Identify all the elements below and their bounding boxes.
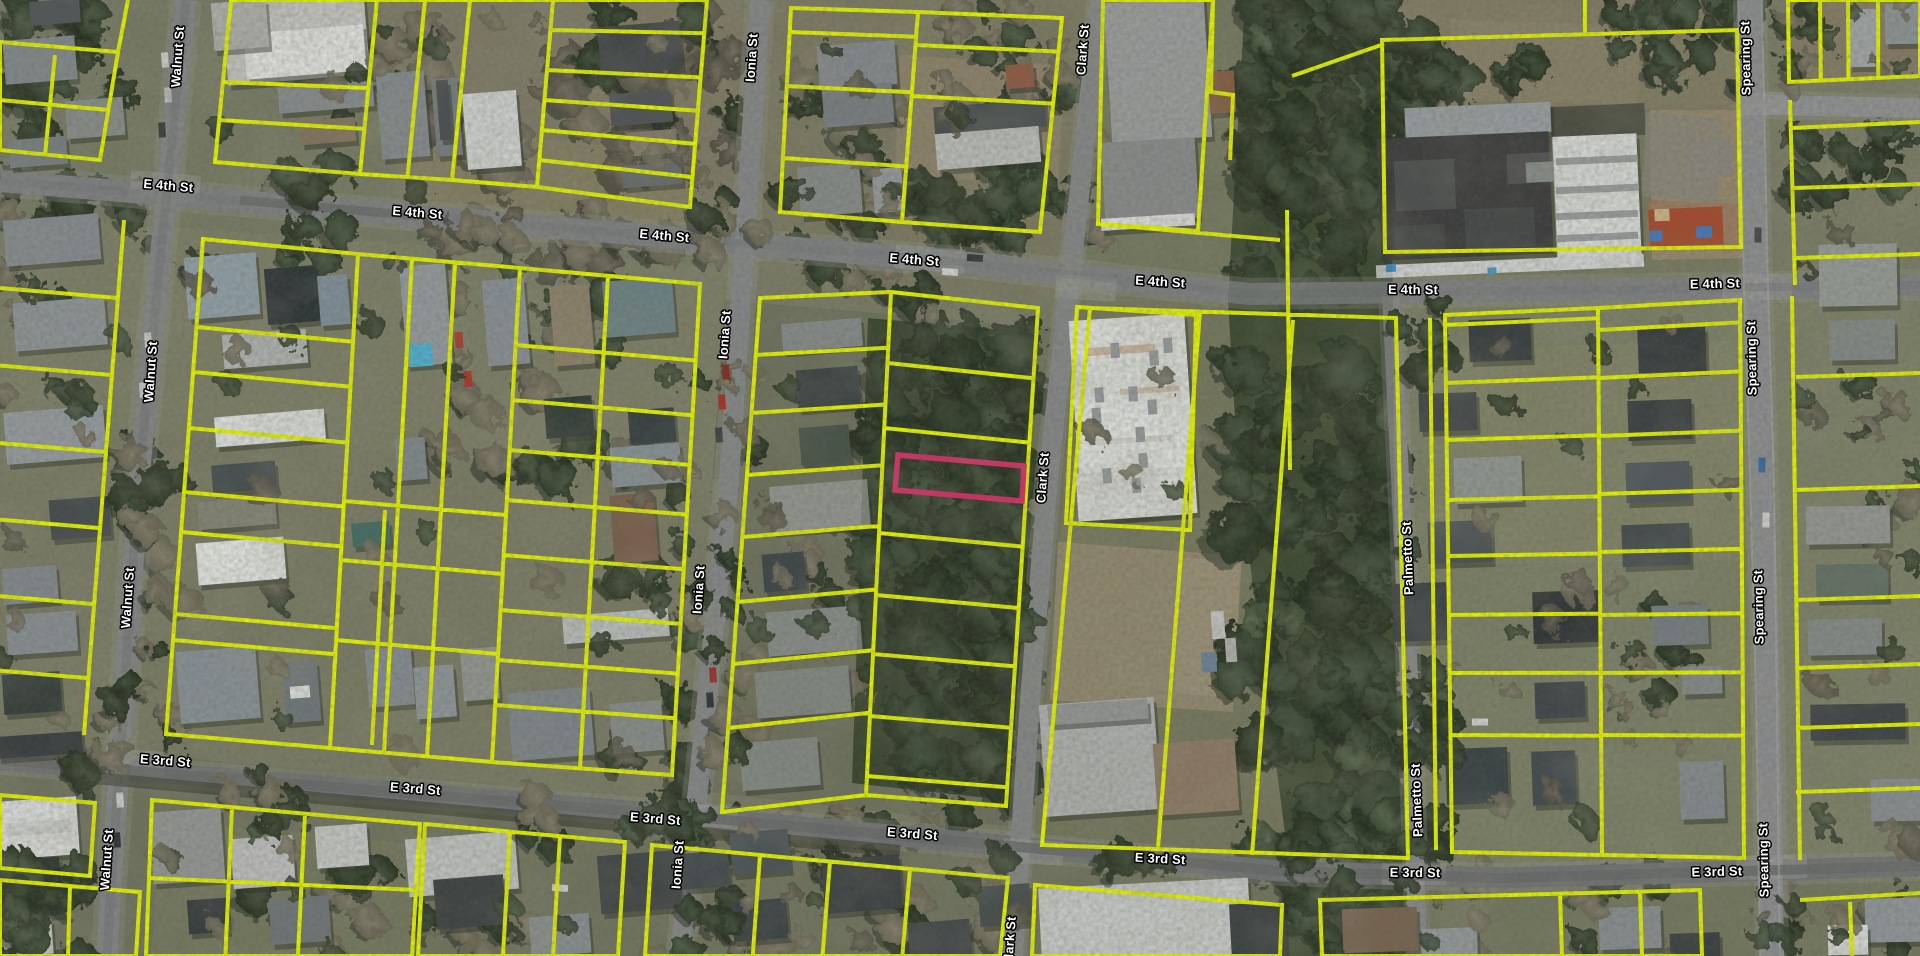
svg-text:Clark St: Clark St (1000, 915, 1019, 956)
svg-text:Spearing St: Spearing St (1750, 569, 1766, 644)
svg-text:Spearing St: Spearing St (1755, 822, 1771, 897)
svg-text:E 4th St: E 4th St (1690, 275, 1741, 291)
svg-text:Palmetto St: Palmetto St (1399, 521, 1417, 596)
svg-text:E 3rd St: E 3rd St (1135, 850, 1187, 868)
svg-text:Spearing St: Spearing St (1737, 20, 1753, 95)
svg-text:Palmetto St: Palmetto St (1408, 763, 1426, 838)
svg-text:E 3rd St: E 3rd St (1691, 863, 1743, 879)
svg-text:Spearing St: Spearing St (1743, 320, 1759, 395)
svg-text:E 4th St: E 4th St (1388, 282, 1439, 297)
svg-text:E 3rd St: E 3rd St (1390, 865, 1441, 880)
svg-text:E 4th St: E 4th St (1135, 272, 1186, 290)
